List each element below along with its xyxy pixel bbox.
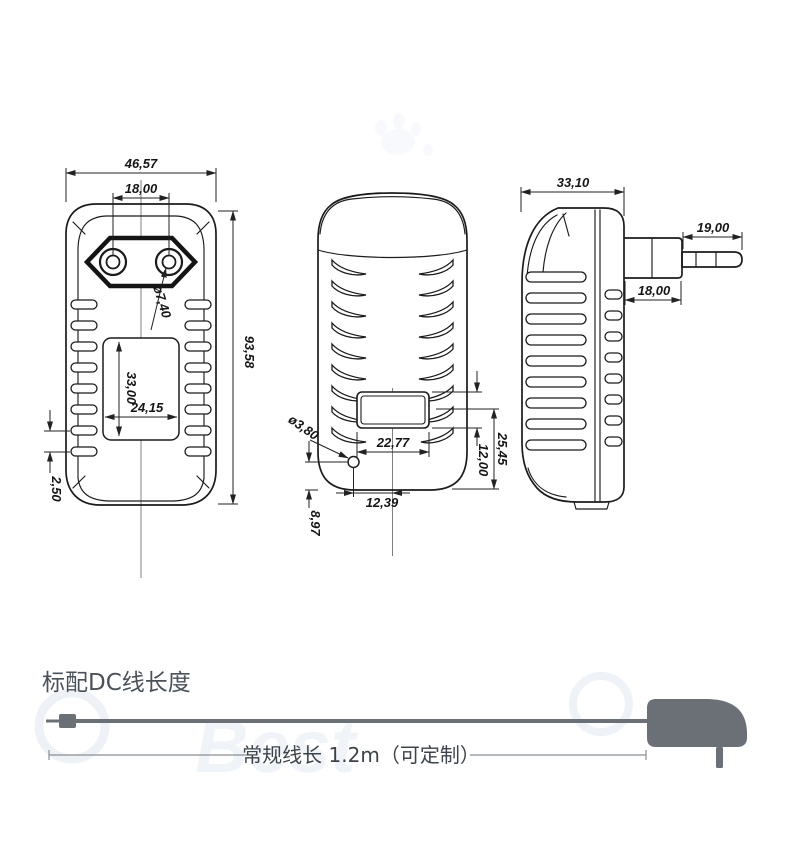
front-vent-slots-right (185, 300, 211, 456)
side-vent-slots-right (605, 290, 622, 446)
cable-length-dimension: 常规线长 1.2m（可定制） (49, 743, 646, 767)
dim-front-pin-diameter: ø7,40 (150, 284, 174, 321)
back-label-port (357, 392, 429, 428)
dim-side-plug-depth: 18,00 (638, 283, 671, 298)
adapter-body-silhouette (647, 699, 747, 747)
side-inner-bottom (528, 468, 566, 497)
dim-side-body-depth: 33,10 (557, 175, 590, 190)
side-view (522, 208, 742, 509)
dim-front-overall-width: 46,57 (124, 156, 158, 171)
screw-hole (348, 457, 359, 468)
plug-pin-side (682, 252, 742, 267)
side-vent-slots-left (526, 272, 586, 450)
plug-base-block (625, 238, 682, 278)
side-bottom-foot (574, 502, 609, 509)
dim-back-hole-offset-y: 8,97 (308, 510, 323, 536)
dim-front-pin-spacing: 18,00 (125, 181, 158, 196)
adapter-pin (716, 747, 723, 768)
side-corner-seam (563, 214, 569, 236)
technical-drawing: Best (0, 0, 790, 862)
front-vent-slots-left (71, 300, 97, 456)
side-dimensions: 33,10 19,00 18,00 (521, 175, 742, 305)
dim-back-label-height: 12,00 (476, 444, 491, 477)
front-label-area (103, 338, 179, 440)
side-inner-curve-2 (543, 213, 566, 272)
dim-front-vent-pitch: 2,50 (49, 475, 64, 502)
product-dimension-page: Best (0, 0, 790, 862)
dim-back-label-width: 22,77 (376, 435, 410, 450)
dim-side-pin-length: 19,00 (697, 220, 730, 235)
cable-length-note: 常规线长 1.2m（可定制） (242, 743, 480, 767)
dim-front-label-width: 24,15 (130, 400, 164, 415)
section-title: 标配DC线长度 (42, 670, 191, 696)
dim-back-label-to-bottom: 25,45 (495, 432, 510, 466)
front-view (66, 180, 216, 578)
dim-front-overall-height: 93,58 (242, 336, 257, 369)
side-inner-curve-1 (527, 215, 557, 277)
dim-back-hole-diameter: ø3,80 (286, 412, 322, 444)
dim-back-hole-offset-x: 12,39 (366, 495, 399, 510)
dc-plug-barrel (59, 714, 76, 728)
back-cap-line (318, 250, 467, 258)
back-inner-top (320, 197, 465, 234)
